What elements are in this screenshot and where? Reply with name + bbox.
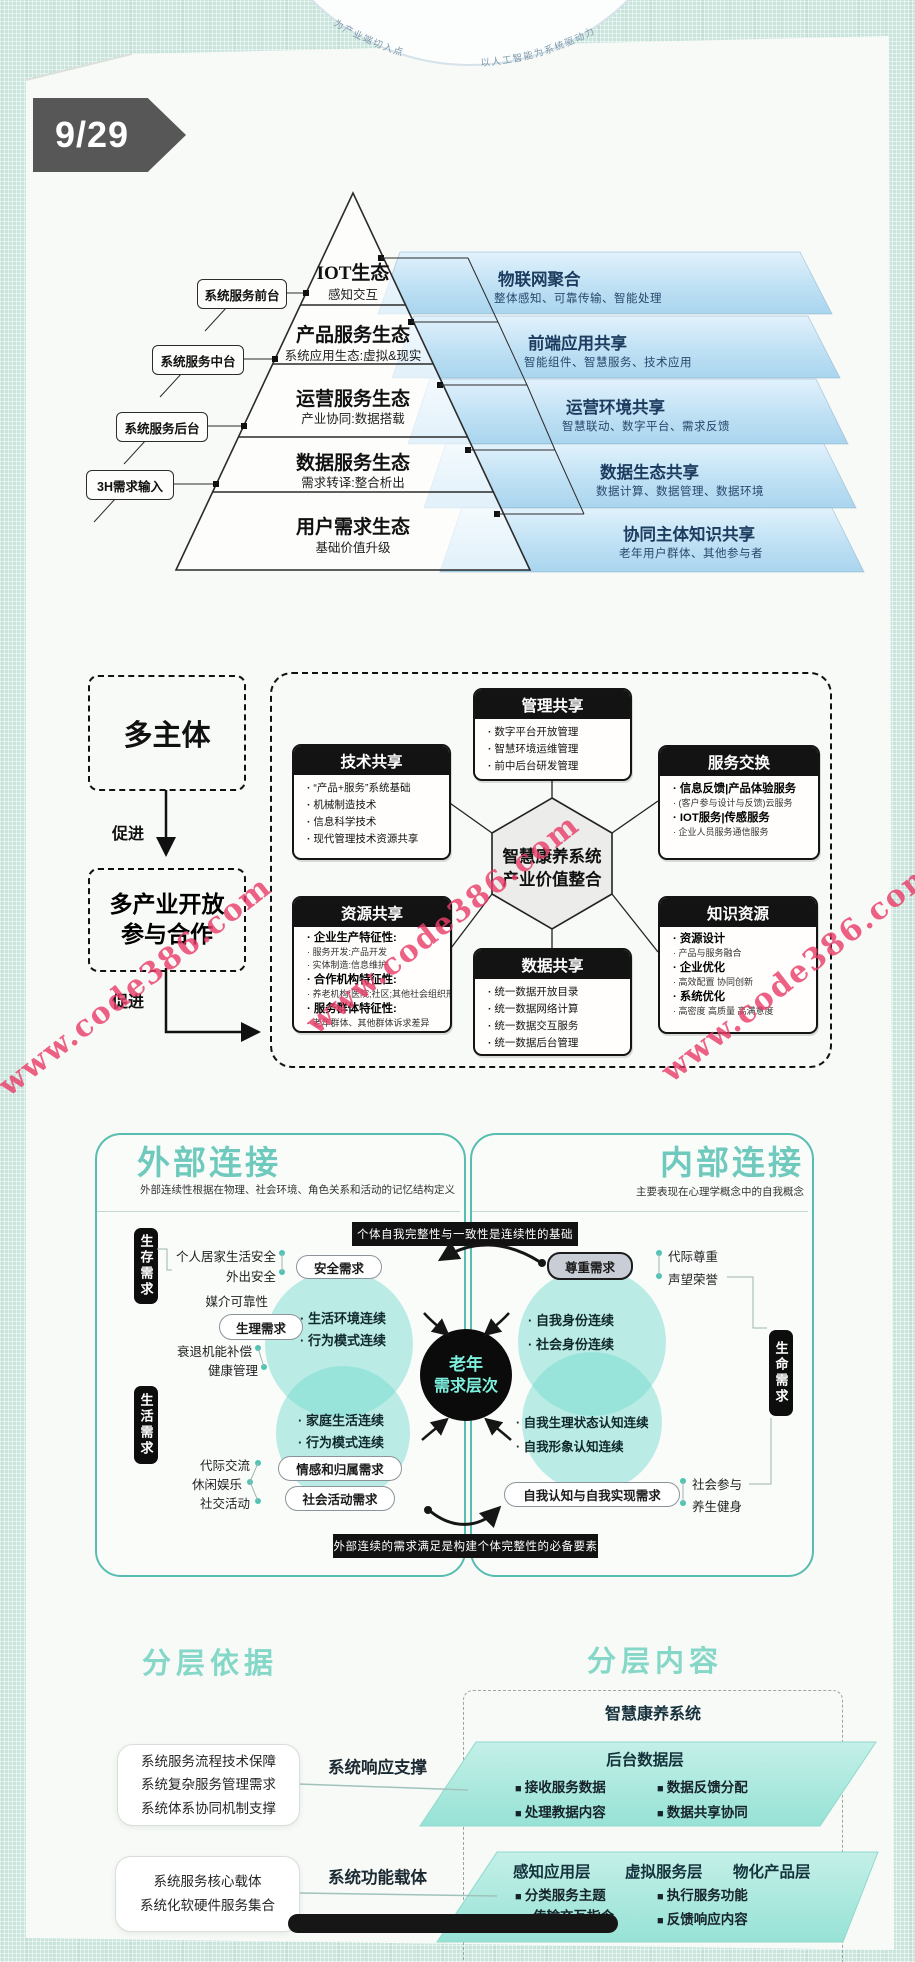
label-system-function: 系统功能载体 [328, 1864, 427, 1888]
system-title: 智慧康养系统 [560, 1700, 746, 1724]
promote-label-1: 促进 [112, 820, 144, 844]
pyramid-layer-5-subtitle: 基础价值升级 [273, 537, 433, 556]
data-item: 统一数据后台管理 [488, 1035, 624, 1052]
item-participation: 社会参与 [692, 1474, 742, 1493]
basis-a-line: 系统服务流程技术保障 [141, 1750, 276, 1774]
service-item: 企业人员服务通信服务 [673, 826, 812, 839]
banner-4-subtitle: 数据计算、数据管理、数据环境 [596, 483, 764, 499]
pyramid-layer-2-title: 产品服务生态 [273, 320, 433, 347]
pyramid-layer-4-subtitle: 需求转译:整合析出 [273, 472, 433, 491]
elderly-needs-line1: 老年 [449, 1353, 483, 1377]
side-label-back: 系统服务后台 [116, 412, 208, 442]
banner-1-subtitle: 整体感知、可靠传输、智能处理 [494, 290, 662, 306]
item-home-safety: 个人居家生活安全 [168, 1246, 276, 1265]
knowledge-item: 资源设计 [673, 931, 810, 947]
external-subtitle: 外部连续性根据在物理、社会环境、角色关系和活动的记忆结构定义 [140, 1182, 455, 1197]
service-exchange-box: 服务交换 信息反馈|产品体验服务 (客户参与设计与反馈)云服务 IOT服务|传感… [658, 745, 820, 860]
p2-header-3: 物化产品层 [733, 1860, 811, 1882]
item-health-management: 健康管理 [160, 1360, 258, 1379]
basis-b-line: 系统化软硬件服务集合 [140, 1894, 275, 1918]
data-item: 统一数据交互服务 [488, 1018, 624, 1035]
pyramid-layer-4-title: 数据服务生态 [273, 448, 433, 475]
tech-share-box: 技术共享 “产品+服务”系统基础 机械制造技术 信息科学技术 现代管理技术资源共… [292, 744, 451, 860]
multi-subject-box: 多主体 [123, 712, 210, 754]
p1-item: 数据共享协同 [657, 1801, 748, 1821]
internal-title: 内部连接 [660, 1136, 804, 1184]
pyramid-layer-2-subtitle: 系统应用生态:虚拟&现实 [253, 345, 453, 364]
manage-share-box: 管理共享 数字平台开放管理 智慧环境运维管理 前中后台研发管理 [473, 688, 632, 781]
basis-a-line: 系统复杂服务管理需求 [141, 1773, 276, 1797]
venn-text: 社会身份连续 [528, 1334, 614, 1353]
data-share-box: 数据共享 统一数据开放目录 统一数据网络计算 统一数据交互服务 统一数据后台管理 [473, 948, 632, 1056]
item-leisure: 休闲娱乐 [142, 1474, 242, 1493]
section-title-content: 分层内容 [560, 1638, 750, 1680]
data-item: 统一数据开放目录 [488, 984, 624, 1001]
item-social-activity: 社交活动 [150, 1493, 250, 1512]
venn-text: 生活环境连续 [300, 1308, 386, 1327]
page-number: 9/29 [33, 114, 129, 156]
side-label-3h-input: 3H需求输入 [86, 470, 174, 500]
service-exchange-title: 服务交换 [660, 747, 818, 776]
service-item: IOT服务|传感服务 [673, 810, 812, 826]
external-title: 外部连接 [137, 1136, 281, 1184]
item-respect: 代际尊重 [668, 1246, 718, 1265]
service-item: 信息反馈|产品体验服务 [673, 781, 812, 797]
internal-subtitle: 主要表现在心理学概念中的自我概念 [636, 1184, 804, 1199]
pill-social-activity-needs: 社会活动需求 [285, 1486, 395, 1511]
p1-item: 处理教据内容 [515, 1801, 606, 1821]
venn-text: 行为模式连续 [300, 1330, 386, 1349]
pyramid-layer-3-title: 运营服务生态 [273, 384, 433, 411]
banner-3-title: 运营环境共享 [566, 394, 665, 418]
basis-box-b: 系统服务核心载体 系统化软硬件服务集合 [115, 1856, 300, 1932]
pyramid-layer-3-subtitle: 产业协同:数据搭载 [273, 408, 433, 427]
p2-header-2: 虚拟服务层 [625, 1860, 703, 1882]
black-bar-decoration [288, 1914, 618, 1933]
item-fitness: 养生健身 [692, 1496, 742, 1515]
internal-divider [472, 1211, 808, 1212]
banner-3-subtitle: 智慧联动、数字平台、需求反馈 [562, 418, 730, 434]
item-intergenerational: 代际交流 [150, 1455, 250, 1474]
item-out-safety: 外出安全 [168, 1266, 276, 1285]
banner-1-title: 物联网聚合 [498, 266, 581, 290]
p2-item: 反馈响应内容 [657, 1908, 748, 1928]
basis-b-line: 系统服务核心载体 [154, 1870, 262, 1894]
basis-box-a: 系统服务流程技术保障 系统复杂服务管理需求 系统体系协同机制支撑 [117, 1744, 300, 1826]
venn-text: 自我身份连续 [528, 1310, 614, 1329]
item-decline-compensation: 衰退机能补偿 [160, 1341, 252, 1360]
venn-text: 自我形象认知连续 [516, 1436, 624, 1455]
pill-emotion-needs: 情感和归属需求 [278, 1456, 402, 1481]
venn-text: 行为模式连续 [298, 1432, 384, 1451]
backend-data-layer-title: 后台数据层 [560, 1748, 730, 1770]
pyramid-layer-1-subtitle: 感知交互 [273, 284, 433, 303]
banner-5-title: 协同主体知识共享 [623, 521, 755, 545]
pill-self-realization-needs: 自我认知与自我实现需求 [504, 1482, 680, 1507]
pyramid-layer-1-title: IOT生态 [273, 258, 433, 285]
pill-physio-needs: 生理需求 [219, 1314, 303, 1340]
pill-vitality-needs: 生命需求 [769, 1330, 793, 1416]
data-share-title: 数据共享 [475, 950, 630, 979]
section-title-basis: 分层依据 [115, 1640, 305, 1682]
tech-item: 信息科学技术 [307, 814, 443, 831]
banner-integrity-top: 个体自我完整性与一致性是连续性的基础 [352, 1222, 578, 1246]
service-item: (客户参与设计与反馈)云服务 [673, 797, 812, 810]
tech-item: “产品+服务”系统基础 [307, 780, 443, 797]
label-system-response: 系统响应支撑 [328, 1754, 427, 1778]
venn-text: 自我生理状态认知连续 [516, 1412, 649, 1431]
slide-page: 为产业端切入点 以人工智能为系统驱动力 9/29 [0, 0, 915, 1962]
tech-share-title: 技术共享 [294, 746, 449, 775]
data-item: 统一数据网络计算 [488, 1001, 624, 1018]
banner-5-subtitle: 老年用户群体、其他参与者 [619, 545, 763, 561]
pill-esteem-needs: 尊重需求 [547, 1252, 633, 1280]
manage-item: 数字平台开放管理 [488, 724, 624, 741]
knowledge-resource-title: 知识资源 [660, 898, 816, 927]
manage-item: 前中后台研发管理 [488, 758, 624, 775]
basis-a-line: 系统体系协同机制支撑 [141, 1797, 276, 1821]
banner-4-title: 数据生态共享 [600, 459, 699, 483]
p2-header-1: 感知应用层 [513, 1860, 591, 1882]
p1-item: 接收服务数据 [515, 1776, 606, 1796]
pill-survival-needs: 生存需求 [134, 1228, 158, 1304]
item-honor: 声望荣誉 [668, 1269, 718, 1288]
p2-item: 分类服务主题 [515, 1884, 606, 1904]
side-label-middle: 系统服务中台 [152, 345, 244, 375]
pill-life-needs: 生活需求 [134, 1386, 158, 1464]
tech-item: 机械制造技术 [307, 797, 443, 814]
banner-2-title: 前端应用共享 [528, 330, 627, 354]
pyramid-layer-5-title: 用户需求生态 [273, 512, 433, 539]
banner-2-subtitle: 智能组件、智慧服务、技术应用 [524, 354, 692, 370]
pill-safety-needs: 安全需求 [296, 1255, 382, 1279]
external-divider [97, 1211, 460, 1212]
side-label-front: 系统服务前台 [197, 279, 287, 309]
p2-item: 执行服务功能 [657, 1884, 748, 1904]
p1-item: 数据反馈分配 [657, 1776, 748, 1796]
tech-item: 现代管理技术资源共享 [307, 831, 443, 848]
item-media-reliability: 媒介可靠性 [168, 1291, 268, 1310]
venn-text: 家庭生活连续 [298, 1410, 384, 1429]
manage-share-title: 管理共享 [475, 690, 630, 719]
banner-integrity-bottom: 外部连续的需求满足是构建个体完整性的必备要素 [333, 1534, 598, 1558]
elderly-needs-line2: 需求层次 [434, 1377, 498, 1398]
manage-item: 智慧环境运维管理 [488, 741, 624, 758]
elderly-needs-circle: 老年 需求层次 [420, 1329, 512, 1421]
